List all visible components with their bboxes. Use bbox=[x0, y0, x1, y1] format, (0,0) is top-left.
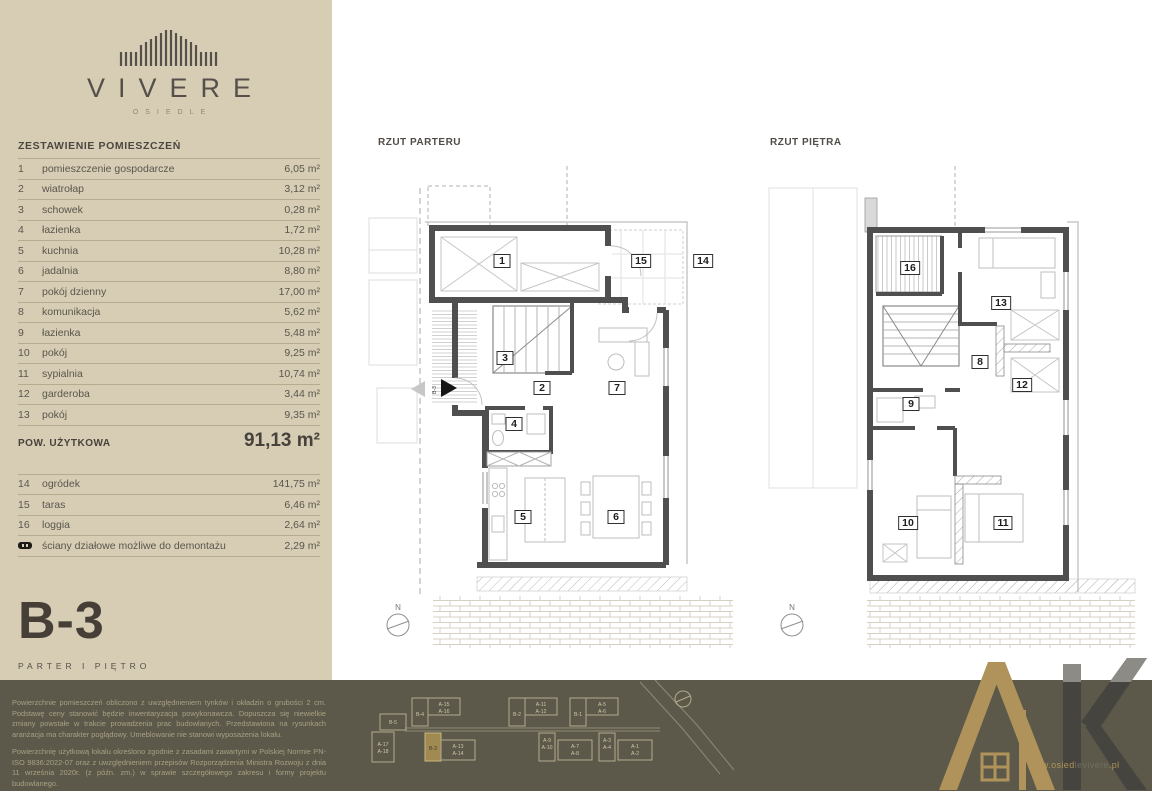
room-name: łazienka bbox=[42, 327, 284, 339]
room-marker-10: 10 bbox=[898, 516, 918, 530]
room-marker-7: 7 bbox=[609, 381, 626, 395]
url-prefix: www.osied bbox=[1028, 760, 1075, 770]
table-row: 16loggia2,64 m² bbox=[18, 516, 320, 537]
room-name: łazienka bbox=[42, 224, 284, 236]
ground-hatch-strip bbox=[477, 577, 687, 591]
room-name: komunikacja bbox=[42, 306, 284, 318]
room-marker-16: 16 bbox=[900, 261, 920, 275]
site-label: B-1 bbox=[574, 712, 582, 718]
room-number: 11 bbox=[18, 368, 42, 380]
site-label-b3: B-3 bbox=[429, 746, 437, 752]
svg-text:N: N bbox=[789, 603, 795, 612]
first-floor-drawing: N bbox=[765, 160, 1150, 655]
room-marker-11: 11 bbox=[993, 516, 1012, 530]
room-number: 12 bbox=[18, 388, 42, 400]
room-number: 7 bbox=[18, 286, 42, 298]
site-label: A-1 bbox=[631, 744, 639, 750]
room-number: 10 bbox=[18, 347, 42, 359]
room-marker-2: 2 bbox=[534, 381, 551, 395]
table-row: 6jadalnia8,80 m² bbox=[18, 262, 320, 283]
room-number: 16 bbox=[18, 519, 42, 531]
extras-table: 14ogródek141,75 m² 15taras6,46 m² 16logg… bbox=[18, 474, 320, 557]
table-row: 11sypialnia10,74 m² bbox=[18, 364, 320, 385]
room-name: pokój dzienny bbox=[42, 286, 279, 298]
table-row: 8komunikacja5,62 m² bbox=[18, 303, 320, 324]
neighbour-outline bbox=[769, 188, 857, 488]
room-name: pokój bbox=[42, 347, 284, 359]
room-number: 13 bbox=[18, 409, 42, 421]
room-marker-9: 9 bbox=[903, 397, 920, 411]
table-row: 13pokój9,35 m² bbox=[18, 405, 320, 426]
room-area: 8,80 m² bbox=[284, 265, 320, 277]
room-name: wiatrołap bbox=[42, 183, 284, 195]
sidebar: VIVERE OSIEDLE ZESTAWIENIE POMIESZCZEŃ 1… bbox=[0, 0, 332, 680]
room-area: 10,28 m² bbox=[279, 245, 320, 257]
usable-area-value: 91,13 m² bbox=[244, 430, 320, 452]
room-area: 1,72 m² bbox=[284, 224, 320, 236]
ak-letter-a bbox=[939, 662, 1055, 790]
room-name: jadalnia bbox=[42, 265, 284, 277]
svg-text:N: N bbox=[395, 603, 401, 612]
room-marker-1: 1 bbox=[494, 254, 511, 268]
room-marker-15: 15 bbox=[631, 254, 651, 268]
site-label: A-9 bbox=[543, 738, 551, 744]
storage-room-walls bbox=[432, 228, 641, 300]
site-label: A-13 bbox=[453, 744, 464, 750]
room-name: pokój bbox=[42, 409, 284, 421]
room-number: 1 bbox=[18, 163, 42, 175]
room-name: taras bbox=[42, 499, 284, 511]
website-link[interactable]: www.osiedlevivere.pl bbox=[1028, 760, 1120, 770]
living-furniture bbox=[599, 328, 649, 376]
site-label: A-4 bbox=[603, 745, 611, 751]
room-number: 3 bbox=[18, 204, 42, 216]
site-label: A-17 bbox=[378, 742, 389, 748]
room-area: 0,28 m² bbox=[284, 204, 320, 216]
unit-code: B-3 bbox=[18, 591, 320, 651]
room-marker-13: 13 bbox=[991, 296, 1011, 310]
usable-area-label: POW. UŻYTKOWA bbox=[18, 438, 111, 449]
table-row: 2wiatrołap3,12 m² bbox=[18, 180, 320, 201]
table-row: 9łazienka5,48 m² bbox=[18, 323, 320, 344]
site-label: A-12 bbox=[536, 709, 547, 715]
usable-area-total: POW. UŻYTKOWA 91,13 m² bbox=[18, 426, 320, 468]
room-area: 9,25 m² bbox=[284, 347, 320, 359]
room-area: 6,46 m² bbox=[284, 499, 320, 511]
unit-floors: PARTER I PIĘTRO bbox=[18, 661, 320, 671]
ground-floor-plan: B-3 bbox=[365, 160, 740, 655]
road bbox=[405, 728, 660, 731]
table-row: 14ogródek141,75 m² bbox=[18, 475, 320, 496]
room-area: 3,12 m² bbox=[284, 183, 320, 195]
room-marker-6: 6 bbox=[608, 510, 625, 524]
floorplan-sheet: VIVERE OSIEDLE ZESTAWIENIE POMIESZCZEŃ 1… bbox=[0, 0, 1152, 791]
room-area: 10,74 m² bbox=[279, 368, 320, 380]
room-name: schowek bbox=[42, 204, 284, 216]
room-marker-5: 5 bbox=[515, 510, 532, 524]
room-area: 5,62 m² bbox=[284, 306, 320, 318]
room-marker-14: 14 bbox=[693, 254, 713, 268]
ak-window bbox=[982, 754, 1008, 780]
room-area: 6,05 m² bbox=[284, 163, 320, 175]
site-label: A-3 bbox=[603, 738, 611, 744]
room-name: ogródek bbox=[42, 478, 273, 490]
room-number: 6 bbox=[18, 265, 42, 277]
room-table-title: ZESTAWIENIE POMIESZCZEŃ bbox=[18, 140, 320, 152]
paving-bricks bbox=[867, 596, 1135, 648]
table-row: 5kuchnia10,28 m² bbox=[18, 241, 320, 262]
developer-logo: VIVERE OSIEDLE bbox=[18, 26, 320, 116]
site-label: A-11 bbox=[536, 702, 547, 708]
site-label: B-2 bbox=[513, 712, 521, 718]
room-marker-4: 4 bbox=[506, 417, 523, 431]
demountable-wall bbox=[487, 452, 551, 466]
room-marker-8: 8 bbox=[972, 355, 989, 369]
site-label: A-2 bbox=[631, 751, 639, 757]
disclaimer-paragraph-1: Powierzchnie pomieszczeń obliczono z uwz… bbox=[12, 698, 326, 740]
paving-bricks bbox=[433, 596, 733, 648]
table-row: 1pomieszczenie gospodarcze6,05 m² bbox=[18, 159, 320, 180]
room-number: 14 bbox=[18, 478, 42, 490]
vivere-house-icon bbox=[114, 26, 224, 66]
neighbour-outline bbox=[369, 218, 417, 443]
site-label: A-10 bbox=[542, 745, 553, 751]
brand-subtitle: OSIEDLE bbox=[18, 109, 320, 116]
room-marker-12: 12 bbox=[1012, 378, 1032, 392]
room-number: 2 bbox=[18, 183, 42, 195]
room-name: garderoba bbox=[42, 388, 284, 400]
table-row: 4łazienka1,72 m² bbox=[18, 221, 320, 242]
ground-floor-drawing: B-3 bbox=[365, 160, 740, 655]
ground-hatch-strip bbox=[870, 579, 1135, 593]
room-area: 141,75 m² bbox=[273, 478, 320, 490]
ak-developer-logo bbox=[935, 652, 1150, 793]
site-label: B-5 bbox=[389, 720, 397, 726]
neighbour-entrance-arrow bbox=[411, 381, 425, 397]
room-area: 3,44 m² bbox=[284, 388, 320, 400]
room-name: kuchnia bbox=[42, 245, 279, 257]
room-area: 17,00 m² bbox=[279, 286, 320, 298]
room-marker-3: 3 bbox=[497, 351, 514, 365]
room-number: 9 bbox=[18, 327, 42, 339]
room-name: pomieszczenie gospodarcze bbox=[42, 163, 284, 175]
room-name: sypialnia bbox=[42, 368, 279, 380]
room-number: 5 bbox=[18, 245, 42, 257]
chimney bbox=[865, 198, 877, 232]
road-diagonal bbox=[640, 680, 734, 774]
room-number: 15 bbox=[18, 499, 42, 511]
table-row: 15taras6,46 m² bbox=[18, 495, 320, 516]
north-compass-icon: N bbox=[781, 603, 803, 636]
room-area: 9,35 m² bbox=[284, 409, 320, 421]
site-label: A-5 bbox=[598, 702, 606, 708]
partition-note-area: 2,29 m² bbox=[284, 540, 320, 552]
url-suffix: .pl bbox=[1109, 760, 1120, 770]
room-number: 8 bbox=[18, 306, 42, 318]
room-area: 2,64 m² bbox=[284, 519, 320, 531]
dining-furniture bbox=[581, 476, 651, 538]
site-label: B-4 bbox=[416, 712, 424, 718]
site-label: A-18 bbox=[378, 749, 389, 755]
site-plan: B-5 A-17 A-18 B-4 A-15 A-16 B-2 A-11 A-1… bbox=[360, 680, 750, 780]
brand-name: VIVERE bbox=[18, 73, 320, 104]
room-name: loggia bbox=[42, 519, 284, 531]
partition-note-row: ściany działowe możliwe do demontażu 2,2… bbox=[18, 536, 320, 557]
north-compass-icon: N bbox=[387, 603, 409, 636]
site-label: A-16 bbox=[439, 709, 450, 715]
first-floor-plan: N 16 13 8 12 9 10 11 bbox=[765, 160, 1150, 655]
staircase bbox=[883, 306, 959, 366]
site-label: A-8 bbox=[571, 751, 579, 757]
url-mid: levivere bbox=[1075, 760, 1109, 770]
table-row: 3schowek0,28 m² bbox=[18, 200, 320, 221]
disclaimer-paragraph-2: Powierzchnię użytkową lokalu określono z… bbox=[12, 747, 326, 789]
site-label: A-7 bbox=[571, 744, 579, 750]
table-row: 10pokój9,25 m² bbox=[18, 344, 320, 365]
table-row: 12garderoba3,44 m² bbox=[18, 385, 320, 406]
svg-text:B-3: B-3 bbox=[432, 386, 438, 394]
room-area: 5,48 m² bbox=[284, 327, 320, 339]
room-table: 1pomieszczenie gospodarcze6,05 m² 2wiatr… bbox=[18, 158, 320, 426]
first-floor-title: RZUT PIĘTRA bbox=[770, 137, 842, 148]
table-row: 7pokój dzienny17,00 m² bbox=[18, 282, 320, 303]
site-label: A-6 bbox=[598, 709, 606, 715]
room-number: 4 bbox=[18, 224, 42, 236]
ground-floor-title: RZUT PARTERU bbox=[378, 137, 461, 148]
partition-wall-icon bbox=[18, 542, 32, 549]
partition-note-text: ściany działowe możliwe do demontażu bbox=[42, 540, 284, 552]
site-label: A-14 bbox=[453, 751, 464, 757]
site-label: A-15 bbox=[439, 702, 450, 708]
